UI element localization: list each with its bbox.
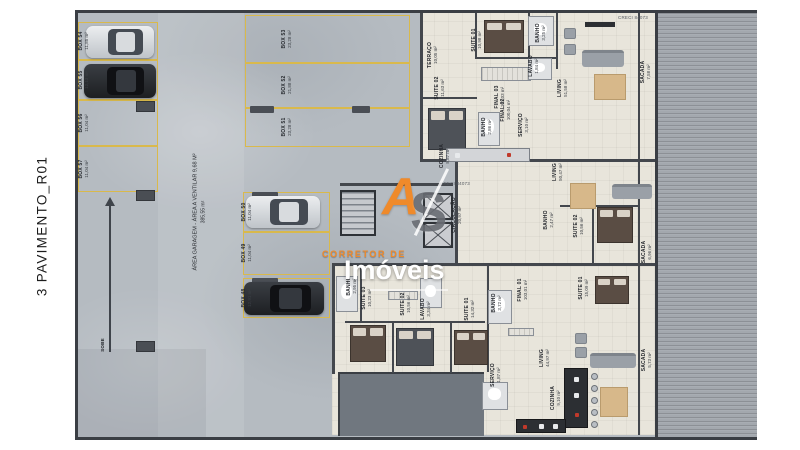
room-label-sacada-f2: SACADA6,96 m² (641, 241, 653, 264)
parking-label-56: BOX 5611,04 m² (78, 114, 90, 133)
dining-table-final02 (570, 183, 596, 209)
room-label-servico-f2: SERVIÇO3,10 m² (518, 113, 530, 137)
wall (332, 264, 335, 374)
room-label-terraco: TERRAÇO10,05 m² (427, 42, 439, 68)
car-roof (116, 32, 135, 52)
wall (392, 321, 394, 373)
wheel-stop (352, 106, 370, 113)
cooktop (523, 425, 527, 429)
room-label-lavabo-f1: LAVABO3,34 m² (420, 298, 432, 320)
unit-label-final02: FINAL 02100,04 m² (500, 98, 512, 121)
watermark-tagline: CORRETOR DE (322, 249, 406, 259)
kitchen-island-final01 (564, 368, 588, 428)
label-area: 11,04 m² (247, 203, 253, 222)
bed-suite03-final01 (350, 325, 386, 362)
room-label-banho-f1: BANHO3,72 m² (491, 293, 503, 312)
appliance (574, 393, 579, 398)
label-area: 10,23 m² (367, 286, 373, 309)
sofa-final02 (612, 184, 652, 199)
column (136, 341, 155, 352)
car-gray-bottom (244, 282, 324, 315)
page-title: 3 PAVIMENTO_R01 (35, 156, 50, 296)
kitchen-counter-final03 (446, 148, 530, 162)
label-area: 1,87 m² (496, 363, 502, 387)
bed-suite02-final01 (396, 328, 434, 366)
label-area: 3,34 m² (426, 298, 432, 320)
label-area: 10,56 m² (406, 292, 412, 315)
sofa-final03 (582, 50, 624, 67)
armchair (575, 347, 587, 358)
wall (345, 321, 485, 323)
parking-label-49: BOX 4911,04 m² (241, 244, 253, 263)
label-area: 6,96 m² (647, 241, 653, 264)
room-label-suite01-f3: SUITE 0110,98 m² (471, 28, 483, 51)
column (136, 190, 155, 201)
room-label-banho2-f1: BANHO2,95 m² (346, 276, 358, 295)
room-label-suite02-f2: SUITE 0210,56 m² (573, 214, 585, 237)
room-label-living-f2: LIVING50,47 m² (552, 163, 564, 181)
parking-label-51: BOX 5123,28 m² (281, 118, 293, 137)
room-label-suite02-f1: SUITE 0210,56 m² (400, 292, 412, 315)
label-area: 2,95 m² (352, 276, 358, 295)
wardrobe (481, 67, 531, 81)
label-area: 385,55 m² (200, 153, 207, 270)
stool (591, 409, 598, 416)
stool (591, 421, 598, 428)
room-label-living-f3: LIVING51,58 m² (557, 79, 569, 97)
label-area: 11,04 m² (84, 160, 90, 179)
armchair (564, 28, 576, 39)
floor-plan: SOBE (75, 10, 757, 440)
label-name: SOBE (100, 338, 106, 352)
kitchen-counter-final01 (516, 419, 566, 433)
wheel-stop (250, 106, 274, 113)
room-label-banho-mid: BANHO2,86 m² (481, 117, 493, 136)
label-area: 23,28 m² (287, 30, 293, 49)
parking-box-52 (245, 63, 410, 108)
car-roof (116, 70, 136, 92)
car-white-middle (246, 196, 320, 228)
label-area: 9,10 m² (556, 386, 562, 410)
wall (340, 183, 453, 186)
label-area: 10,56 m² (579, 214, 585, 237)
parking-label-53: BOX 5323,28 m² (281, 30, 293, 49)
parking-box-49 (243, 232, 330, 275)
parking-label-55: BOX 5512,13 m² (78, 71, 90, 90)
label-area: 10,05 m² (433, 42, 439, 68)
roof-deck-strip (655, 13, 757, 437)
car-roof (279, 202, 300, 222)
car-roof (279, 288, 301, 309)
label-area: 11,04 m² (247, 244, 253, 263)
label-area: 10,98 m² (477, 28, 483, 51)
label-area: 21,88 m² (287, 76, 293, 95)
room-label-suite03-f1: SUITE 0310,23 m² (361, 286, 373, 309)
wall (420, 97, 477, 99)
label-area: 15,09 m² (584, 276, 590, 299)
parking-label-52: BOX 5221,88 m² (281, 76, 293, 95)
garage-shade (78, 349, 206, 437)
ramp-arrow-line (109, 205, 111, 352)
wall (592, 205, 594, 263)
room-label-suite01-f2: SUITE 0115,09 m² (578, 276, 590, 299)
cooktop (575, 413, 579, 417)
label-area: 2,86 m² (487, 117, 493, 136)
label-area: 2,47 m² (549, 210, 555, 229)
wall (450, 321, 452, 373)
car-black-top (84, 64, 156, 98)
bed-suite01-final02 (595, 276, 629, 304)
appliance (553, 424, 558, 429)
stool (591, 385, 598, 392)
room-label-cozinha-f3: COZINHA8,87 m² (439, 144, 451, 168)
room-label-banho-f2: BANHO2,47 m² (543, 210, 555, 229)
stool (591, 373, 598, 380)
ramp-label: SOBE (100, 338, 106, 352)
garage-area-label: ÁREA GARAGEM - ÁREA A VENTILAR 9,68 M²38… (193, 153, 208, 270)
creci-stamp: CRECI 84073 (618, 15, 648, 20)
appliance (539, 424, 544, 429)
sink (455, 153, 460, 158)
label-area: 100,04 m² (506, 98, 512, 121)
void-area (338, 372, 484, 436)
column (136, 101, 155, 112)
cooktop (507, 153, 511, 157)
label-area: 3,25 m² (541, 23, 547, 42)
label-area: 3,72 m² (497, 293, 503, 312)
label-area: 20,97 m² (457, 197, 463, 233)
circulation-label: CIRCULAÇÃO20,97 m² (451, 197, 463, 233)
label-area: 1,84 m² (534, 55, 540, 77)
parking-label-48: BOX 4812,91 m² (241, 289, 253, 308)
parking-label-54: BOX 5411,85 m² (78, 32, 90, 51)
label-area: 5,73 m² (647, 349, 653, 372)
room-label-suite02-f3: SUITE 0211,63 m² (434, 76, 446, 99)
label-area: 11,63 m² (440, 76, 446, 99)
bed-suite01-final01 (454, 330, 488, 365)
armchair (575, 333, 587, 344)
stairs (340, 190, 376, 236)
label-area: 12,13 m² (84, 71, 90, 90)
label-area: 103,01 m² (523, 278, 529, 301)
elevator-2 (423, 222, 453, 248)
parking-box-53 (245, 15, 410, 63)
closet (508, 328, 534, 336)
parking-label-50: BOX 5011,04 m² (241, 203, 253, 222)
car-white-top (86, 26, 154, 58)
room-label-lavabo-f3: LAVABO1,84 m² (528, 55, 540, 77)
armchair (564, 44, 576, 55)
label-area: 3,10 m² (524, 113, 530, 137)
tv-sideboard (585, 22, 615, 27)
label-area: 44,97 m² (545, 349, 551, 367)
elevator-1 (423, 193, 453, 220)
parking-label-57: BOX 5711,04 m² (78, 160, 90, 179)
ramp-arrow-head (105, 197, 115, 206)
label-area: 50,47 m² (558, 163, 564, 181)
label-area: 51,58 m² (563, 79, 569, 97)
unit-label-final01: FINAL 01103,01 m² (517, 278, 529, 301)
dining-table-final03 (594, 74, 626, 100)
wall (556, 13, 558, 69)
label-area: 11,85 m² (84, 32, 90, 51)
stool (591, 397, 598, 404)
room-label-sacada-f3: SACADA7,58 m² (640, 61, 652, 84)
room-label-suite01-f1: SUITE 0114,32 m² (464, 297, 476, 320)
parking-box-51 (245, 108, 410, 147)
label-area: 23,28 m² (287, 118, 293, 137)
parking-box-57 (78, 146, 158, 192)
room-label-servico-f1: SERVIÇO1,87 m² (490, 363, 502, 387)
sink (574, 377, 579, 382)
room-label-living-f1: LIVING44,97 m² (539, 349, 551, 367)
room-label-banho-f3: BANHO3,25 m² (535, 23, 547, 42)
label-area: 11,04 m² (84, 114, 90, 133)
floor-plan-page: 3 PAVIMENTO_R01 (0, 0, 800, 450)
wall (332, 263, 655, 266)
label-area: 12,91 m² (247, 289, 253, 308)
label-area: 14,32 m² (470, 297, 476, 320)
creci-stamp: CRECI 84073 (440, 181, 470, 186)
wall (420, 13, 423, 162)
room-label-sacada-f1: SACADA5,73 m² (641, 349, 653, 372)
bed-suite02-final02 (597, 207, 633, 243)
sofa-final01 (590, 353, 636, 368)
label-name: ÁREA GARAGEM - ÁREA A VENTILAR 9,68 M² (193, 153, 199, 270)
label-area: 8,87 m² (445, 144, 451, 168)
room-label-cozinha-f1: COZINHA9,10 m² (550, 386, 562, 410)
dining-table-final01 (600, 387, 628, 417)
bed-suite01-final03 (484, 20, 524, 53)
label-area: 7,58 m² (646, 61, 652, 84)
watermark-logo-a: A (382, 167, 420, 227)
